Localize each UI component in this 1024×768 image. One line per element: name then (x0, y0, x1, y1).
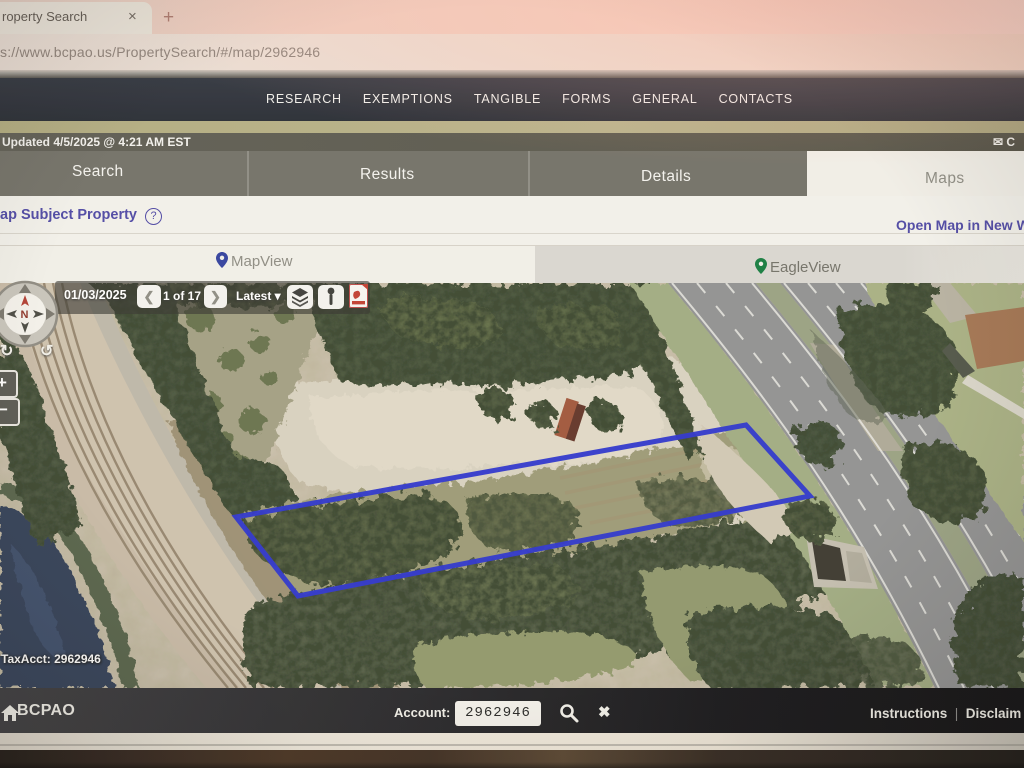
svg-text:N: N (21, 309, 29, 321)
